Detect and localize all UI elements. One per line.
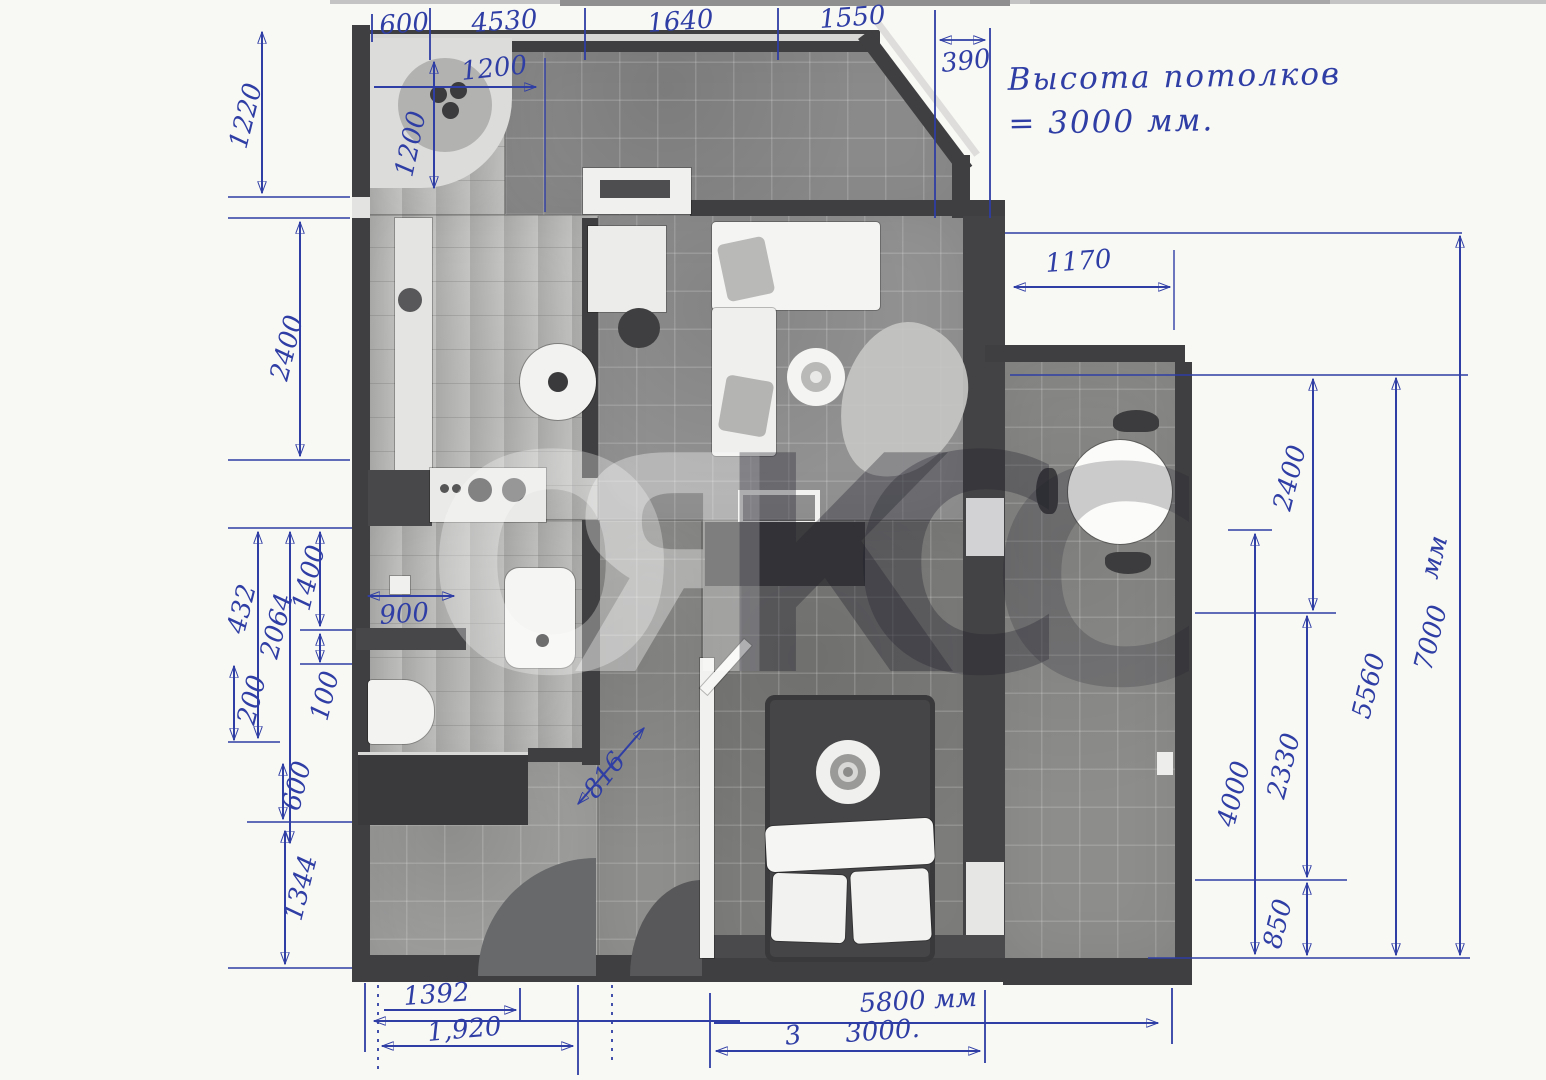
dim-label: 850 xyxy=(1258,896,1299,951)
dim-label: 1220 xyxy=(224,80,269,151)
note-line-1: Высота потолков xyxy=(1007,52,1341,102)
dim-label: 1344 xyxy=(279,852,324,923)
stove-burner xyxy=(502,478,526,502)
scanned-floorplan-sheet: О Я К С С Высота потолков = 3000 мм. 600… xyxy=(0,0,1546,1080)
dim-label: 4000 xyxy=(1211,758,1256,830)
desk xyxy=(588,226,666,312)
scan-edge-line-mid xyxy=(1030,0,1330,4)
chair xyxy=(1113,410,1159,432)
stove-knob xyxy=(452,484,461,493)
dining-table-vase xyxy=(548,372,568,392)
dim-label: 1400 xyxy=(287,542,332,613)
wall-bathroom-divider xyxy=(582,520,600,765)
partition-wall xyxy=(700,658,714,958)
dim-label: 600 xyxy=(277,758,318,813)
dim-label: 2330 xyxy=(1261,730,1306,802)
wall-bathroom-hall xyxy=(528,748,600,762)
media-cabinet xyxy=(705,522,865,586)
dim-label: 7000 xyxy=(1409,602,1454,673)
wall-balcony-bottom xyxy=(1003,958,1192,985)
dim-label: 5560 xyxy=(1347,650,1392,721)
ceiling-height-note: Высота потолков = 3000 мм. xyxy=(1007,52,1342,146)
wall-right-door-gap xyxy=(966,498,1004,556)
dim-label: 390 xyxy=(940,44,993,79)
dim-label: 3 xyxy=(783,1020,804,1052)
side-table-center xyxy=(810,371,822,383)
chair xyxy=(1036,468,1058,514)
toilet xyxy=(368,680,434,744)
soap-dish xyxy=(390,576,410,594)
dim-label: 200 xyxy=(231,672,272,728)
dim-label: 1170 xyxy=(1044,244,1112,279)
dim-label: 2064 xyxy=(254,590,299,662)
dim-label: 432 xyxy=(221,581,262,637)
dim-label: 1,920 xyxy=(426,1012,503,1048)
washing-machine xyxy=(358,752,528,825)
bathroom-sink xyxy=(505,568,575,668)
sink-drain xyxy=(536,634,549,647)
dim-label: 100 xyxy=(305,668,346,723)
bath-counter xyxy=(356,628,466,650)
pillow xyxy=(850,868,932,944)
stove-burner xyxy=(468,478,492,502)
scan-edge-line-dark xyxy=(560,0,1010,6)
sideboard-frame xyxy=(738,490,820,526)
kitchen-cabinets xyxy=(395,218,432,470)
table-dot xyxy=(442,102,459,119)
wall-balcony-right xyxy=(1175,362,1192,985)
dim-label: 1392 xyxy=(402,977,470,1012)
desk-chair xyxy=(618,308,660,348)
table-dot xyxy=(450,82,467,99)
sofa-pillow xyxy=(718,374,775,437)
pillow xyxy=(771,873,847,944)
dim-label: 2400 xyxy=(264,312,309,384)
dim-label: 5800 мм xyxy=(859,983,978,1019)
blanket xyxy=(765,818,935,873)
living-room-floor xyxy=(505,35,965,215)
dim-label: мм xyxy=(1415,533,1455,582)
balcony-door-gap xyxy=(966,862,1004,938)
dim-label: 3000. xyxy=(844,1014,920,1049)
chair xyxy=(1105,552,1151,574)
dim-label: 2400 xyxy=(1267,442,1312,514)
wall-left-gap xyxy=(352,197,370,218)
wall-balcony-top xyxy=(985,345,1185,362)
bed-rug-dot xyxy=(843,767,853,777)
stove-knob xyxy=(440,484,449,493)
wall-under-living xyxy=(690,200,1005,216)
note-line-2: = 3000 мм. xyxy=(1008,96,1342,146)
kitchen-appliance xyxy=(398,288,422,312)
balcony-window-latch xyxy=(1157,752,1173,775)
kitchen-dark-cabinet xyxy=(368,470,432,526)
tv-screen xyxy=(600,180,670,198)
table-dot xyxy=(430,86,447,103)
round-table xyxy=(1068,440,1172,544)
